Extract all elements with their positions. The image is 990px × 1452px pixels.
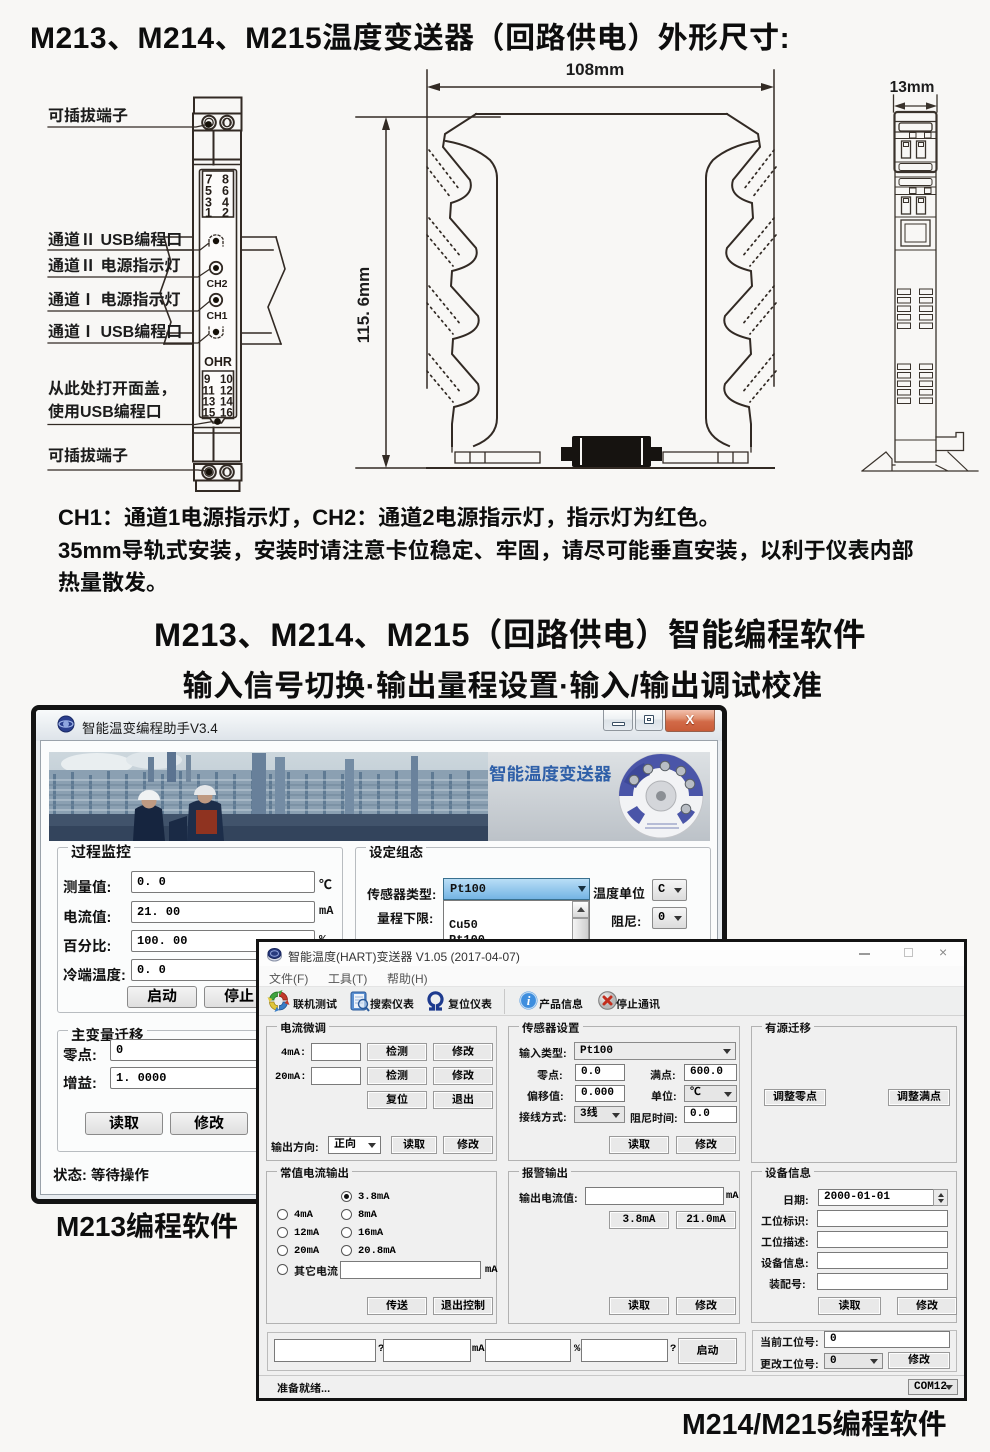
svg-text:13mm: 13mm xyxy=(890,79,935,96)
svg-text:通道Ⅰ 电源指示灯: 通道Ⅰ 电源指示灯 xyxy=(48,291,180,309)
svg-text:通道Ⅰ USB编程口: 通道Ⅰ USB编程口 xyxy=(48,323,182,341)
svg-text:CH1: CH1 xyxy=(206,310,227,322)
svg-text:1: 1 xyxy=(205,206,212,220)
svg-text:15: 15 xyxy=(203,408,216,420)
svg-text:使用USB编程口: 使用USB编程口 xyxy=(48,403,162,421)
svg-text:可插拔端子: 可插拔端子 xyxy=(48,447,128,465)
svg-text:可插拔端子: 可插拔端子 xyxy=(48,107,128,125)
svg-text:i: i xyxy=(527,993,531,1008)
svg-text:9: 9 xyxy=(204,374,210,386)
svg-text:智能温度变送器: 智能温度变送器 xyxy=(489,764,612,784)
svg-text:通道Ⅱ 电源指示灯: 通道Ⅱ 电源指示灯 xyxy=(48,257,180,275)
svg-text:2: 2 xyxy=(222,206,229,220)
svg-text:OHR: OHR xyxy=(204,355,232,369)
svg-text:通道Ⅱ USB编程口: 通道Ⅱ USB编程口 xyxy=(48,231,182,249)
svg-text:115. 6mm: 115. 6mm xyxy=(354,267,373,344)
svg-text:10: 10 xyxy=(220,374,233,386)
svg-text:108mm: 108mm xyxy=(566,60,625,79)
svg-text:CH2: CH2 xyxy=(206,278,227,290)
svg-text:16: 16 xyxy=(220,408,233,420)
svg-text:从此处打开面盖，: 从此处打开面盖， xyxy=(48,380,176,398)
